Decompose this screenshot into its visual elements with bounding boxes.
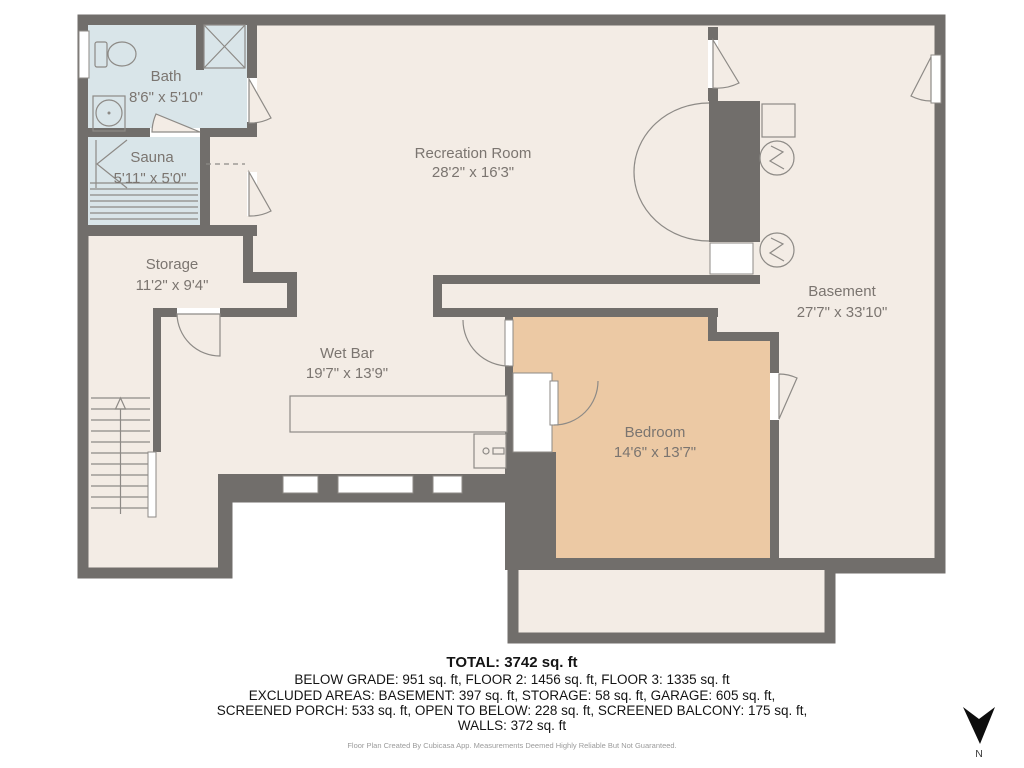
room-dims-basement: 27'7" x 33'10" [797, 304, 888, 321]
compass: N [963, 707, 995, 760]
window [283, 476, 318, 493]
floor-plan-page: Bath 8'6" x 5'10" Sauna 5'11" x 5'0" Sto… [0, 0, 1024, 768]
summary-total: TOTAL: 3742 sq. ft [446, 654, 577, 671]
room-label-sauna: Sauna [130, 149, 174, 166]
window [931, 55, 941, 103]
sauna-benches [90, 183, 198, 219]
room-label-basement: Basement [808, 283, 876, 300]
room-label-recreation: Recreation Room [415, 145, 532, 162]
room-dims-sauna: 5'11" x 5'0" [114, 170, 187, 187]
room-label-storage: Storage [146, 256, 199, 273]
window [79, 31, 89, 78]
north-arrow-icon [963, 707, 995, 744]
room-label-bath: Bath [151, 68, 182, 85]
summary-line-1: BELOW GRADE: 951 sq. ft, FLOOR 2: 1456 s… [294, 672, 729, 687]
chimney-block [709, 101, 760, 242]
window [433, 476, 462, 493]
door-leaf [550, 381, 558, 425]
open-recess [710, 243, 753, 274]
room-dims-recreation: 28'2" x 16'3" [432, 164, 514, 181]
room-dims-storage: 11'2" x 9'4" [136, 277, 209, 294]
room-dims-wetbar: 19'7" x 13'9" [306, 365, 388, 382]
summary-line-2: EXCLUDED AREAS: BASEMENT: 397 sq. ft, ST… [249, 688, 775, 703]
area-summary: TOTAL: 3742 sq. ft BELOW GRADE: 951 sq. … [217, 654, 807, 750]
floor-plan-drawing: Bath 8'6" x 5'10" Sauna 5'11" x 5'0" Sto… [0, 0, 1024, 768]
room-dims-bedroom: 14'6" x 13'7" [614, 444, 696, 461]
water-heater-icon [760, 233, 794, 267]
room-label-bedroom: Bedroom [625, 424, 686, 441]
summary-line-4: WALLS: 372 sq. ft [458, 718, 567, 733]
wet-bar-counter [290, 396, 507, 432]
window [338, 476, 413, 493]
stair-railing [148, 452, 156, 517]
water-heater-icon [760, 141, 794, 175]
door-leaf [505, 320, 513, 366]
room-label-wetbar: Wet Bar [320, 345, 374, 362]
bedroom-closet [513, 373, 552, 452]
summary-line-3: SCREENED PORCH: 533 sq. ft, OPEN TO BELO… [217, 703, 807, 718]
bar-appliance-icon [474, 434, 506, 468]
credit-line: Floor Plan Created By Cubicasa App. Meas… [347, 741, 676, 750]
compass-label: N [975, 748, 983, 760]
chimney-side-cabinet [762, 104, 795, 137]
room-dims-bath: 8'6" x 5'10" [129, 89, 203, 106]
